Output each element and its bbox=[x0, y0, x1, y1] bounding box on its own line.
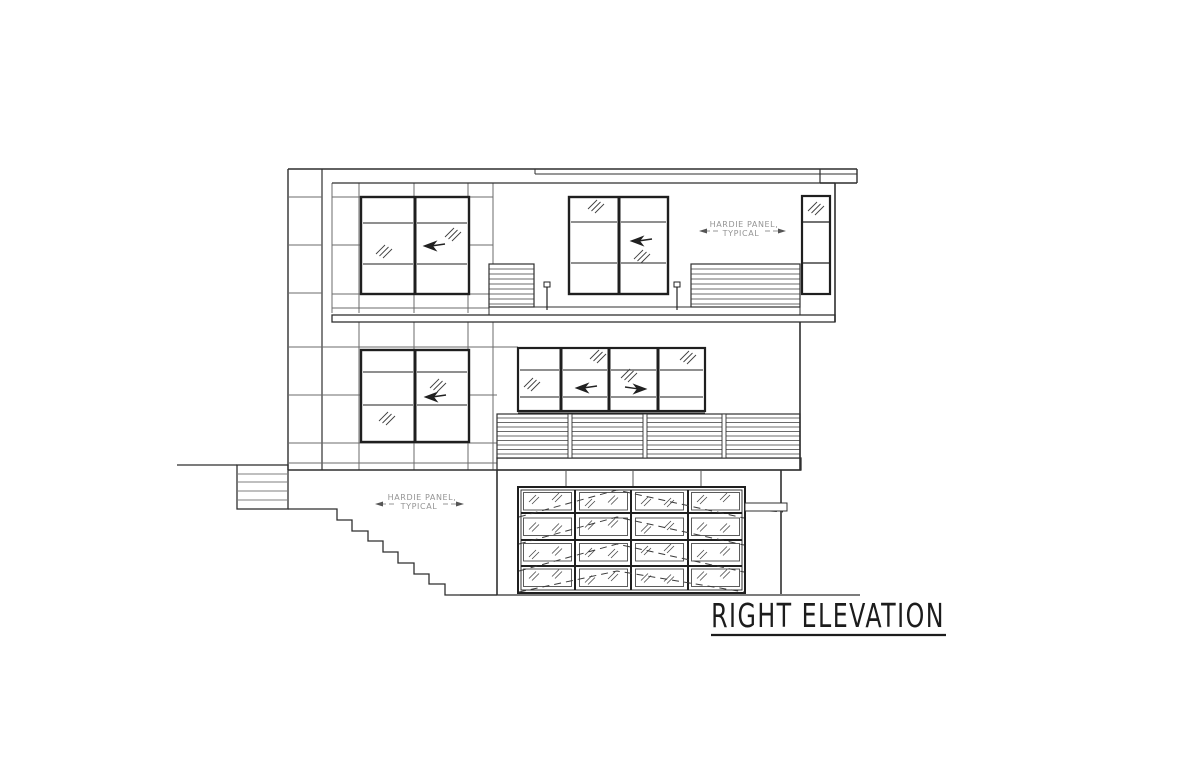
leader-arrow-right bbox=[456, 502, 464, 507]
roof-fascia bbox=[288, 169, 857, 183]
page-title: RIGHT ELEVATION bbox=[711, 596, 945, 635]
railing-post bbox=[722, 414, 726, 458]
right-elevation-drawing: HARDIE PANEL, TYPICAL HARDIE PANEL, TYPI… bbox=[0, 0, 1200, 768]
side-trim-ledge bbox=[745, 503, 787, 511]
upper-left-window bbox=[361, 197, 469, 294]
leader-arrow-left bbox=[375, 502, 383, 507]
upper-center-window bbox=[569, 197, 668, 294]
garage-door bbox=[518, 487, 783, 593]
note-line1: HARDIE PANEL, bbox=[388, 493, 457, 502]
hardie-panel-note-upper: HARDIE PANEL, TYPICAL bbox=[699, 220, 786, 238]
note-line2: TYPICAL bbox=[722, 229, 760, 238]
railing-post bbox=[568, 414, 572, 458]
leader-arrow-left bbox=[699, 229, 707, 234]
upper-deck-band bbox=[489, 307, 800, 315]
railing-post bbox=[643, 414, 647, 458]
upper-floor-edge bbox=[332, 315, 835, 322]
balcony-floor-edge bbox=[497, 458, 801, 470]
upper-right-narrow-window bbox=[802, 196, 830, 294]
retaining-wall bbox=[237, 465, 288, 509]
drawing-title: RIGHT ELEVATION bbox=[711, 596, 946, 635]
note-line1: HARDIE PANEL, bbox=[710, 220, 779, 229]
leader-arrow-right bbox=[778, 229, 786, 234]
site-stairs bbox=[288, 509, 497, 595]
middle-left-window bbox=[361, 350, 469, 442]
note-line2: TYPICAL bbox=[400, 502, 438, 511]
elevation-sheet: HARDIE PANEL, TYPICAL HARDIE PANEL, TYPI… bbox=[0, 0, 1200, 768]
hardie-panel-note-lower: HARDIE PANEL, TYPICAL bbox=[375, 493, 464, 511]
upper-deck-railing-left bbox=[489, 264, 534, 307]
upper-deck-railing-right bbox=[691, 264, 800, 307]
ribbon-window bbox=[518, 348, 705, 413]
garage-level bbox=[518, 470, 787, 593]
